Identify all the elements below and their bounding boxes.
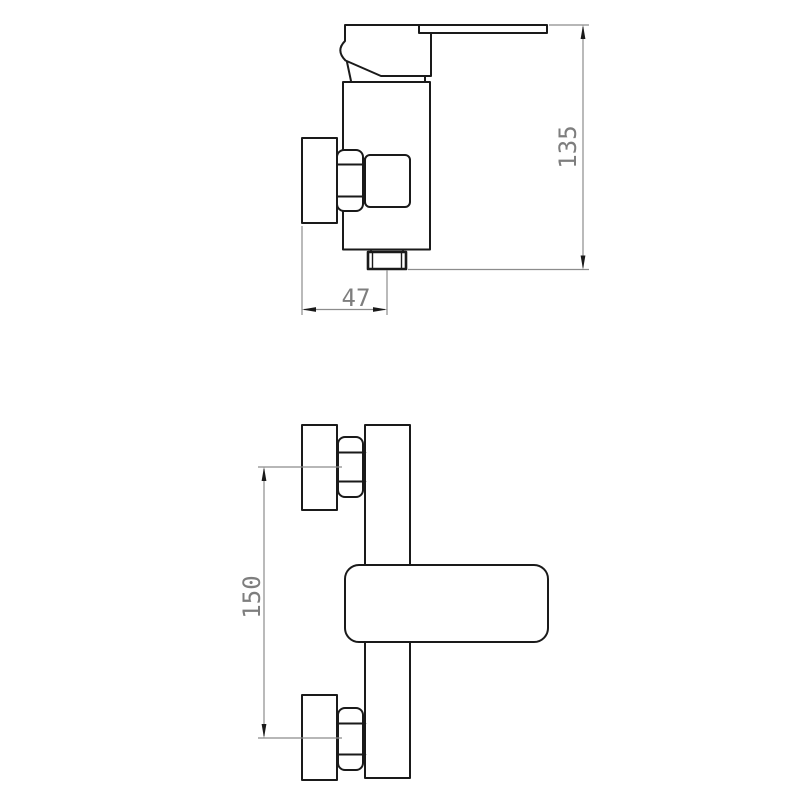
outlet xyxy=(368,252,406,269)
arrow-47-left xyxy=(302,307,316,312)
arrow-150-top xyxy=(262,467,267,481)
arrow-135-top xyxy=(581,25,586,39)
arrow-150-bottom xyxy=(262,724,267,738)
dim-label-47: 47 xyxy=(342,284,371,312)
handle-lever xyxy=(419,25,547,33)
hose-connector xyxy=(365,155,410,207)
dim-label-135: 135 xyxy=(554,125,582,168)
hex-nut xyxy=(337,150,363,211)
arrow-47-right xyxy=(373,307,387,312)
dim-label-150: 150 xyxy=(238,575,266,618)
wall-flange xyxy=(302,138,337,223)
front-view xyxy=(302,425,548,780)
handle-neck-line xyxy=(347,62,351,81)
technical-drawing-page: 135 47 150 xyxy=(0,0,800,800)
bottom-hex-nut xyxy=(338,708,363,770)
handle-front xyxy=(345,565,548,642)
arrow-135-bottom xyxy=(581,256,586,270)
handle-head xyxy=(340,25,431,76)
mixer-drawing: 135 47 150 xyxy=(0,0,800,800)
side-view xyxy=(302,25,547,269)
